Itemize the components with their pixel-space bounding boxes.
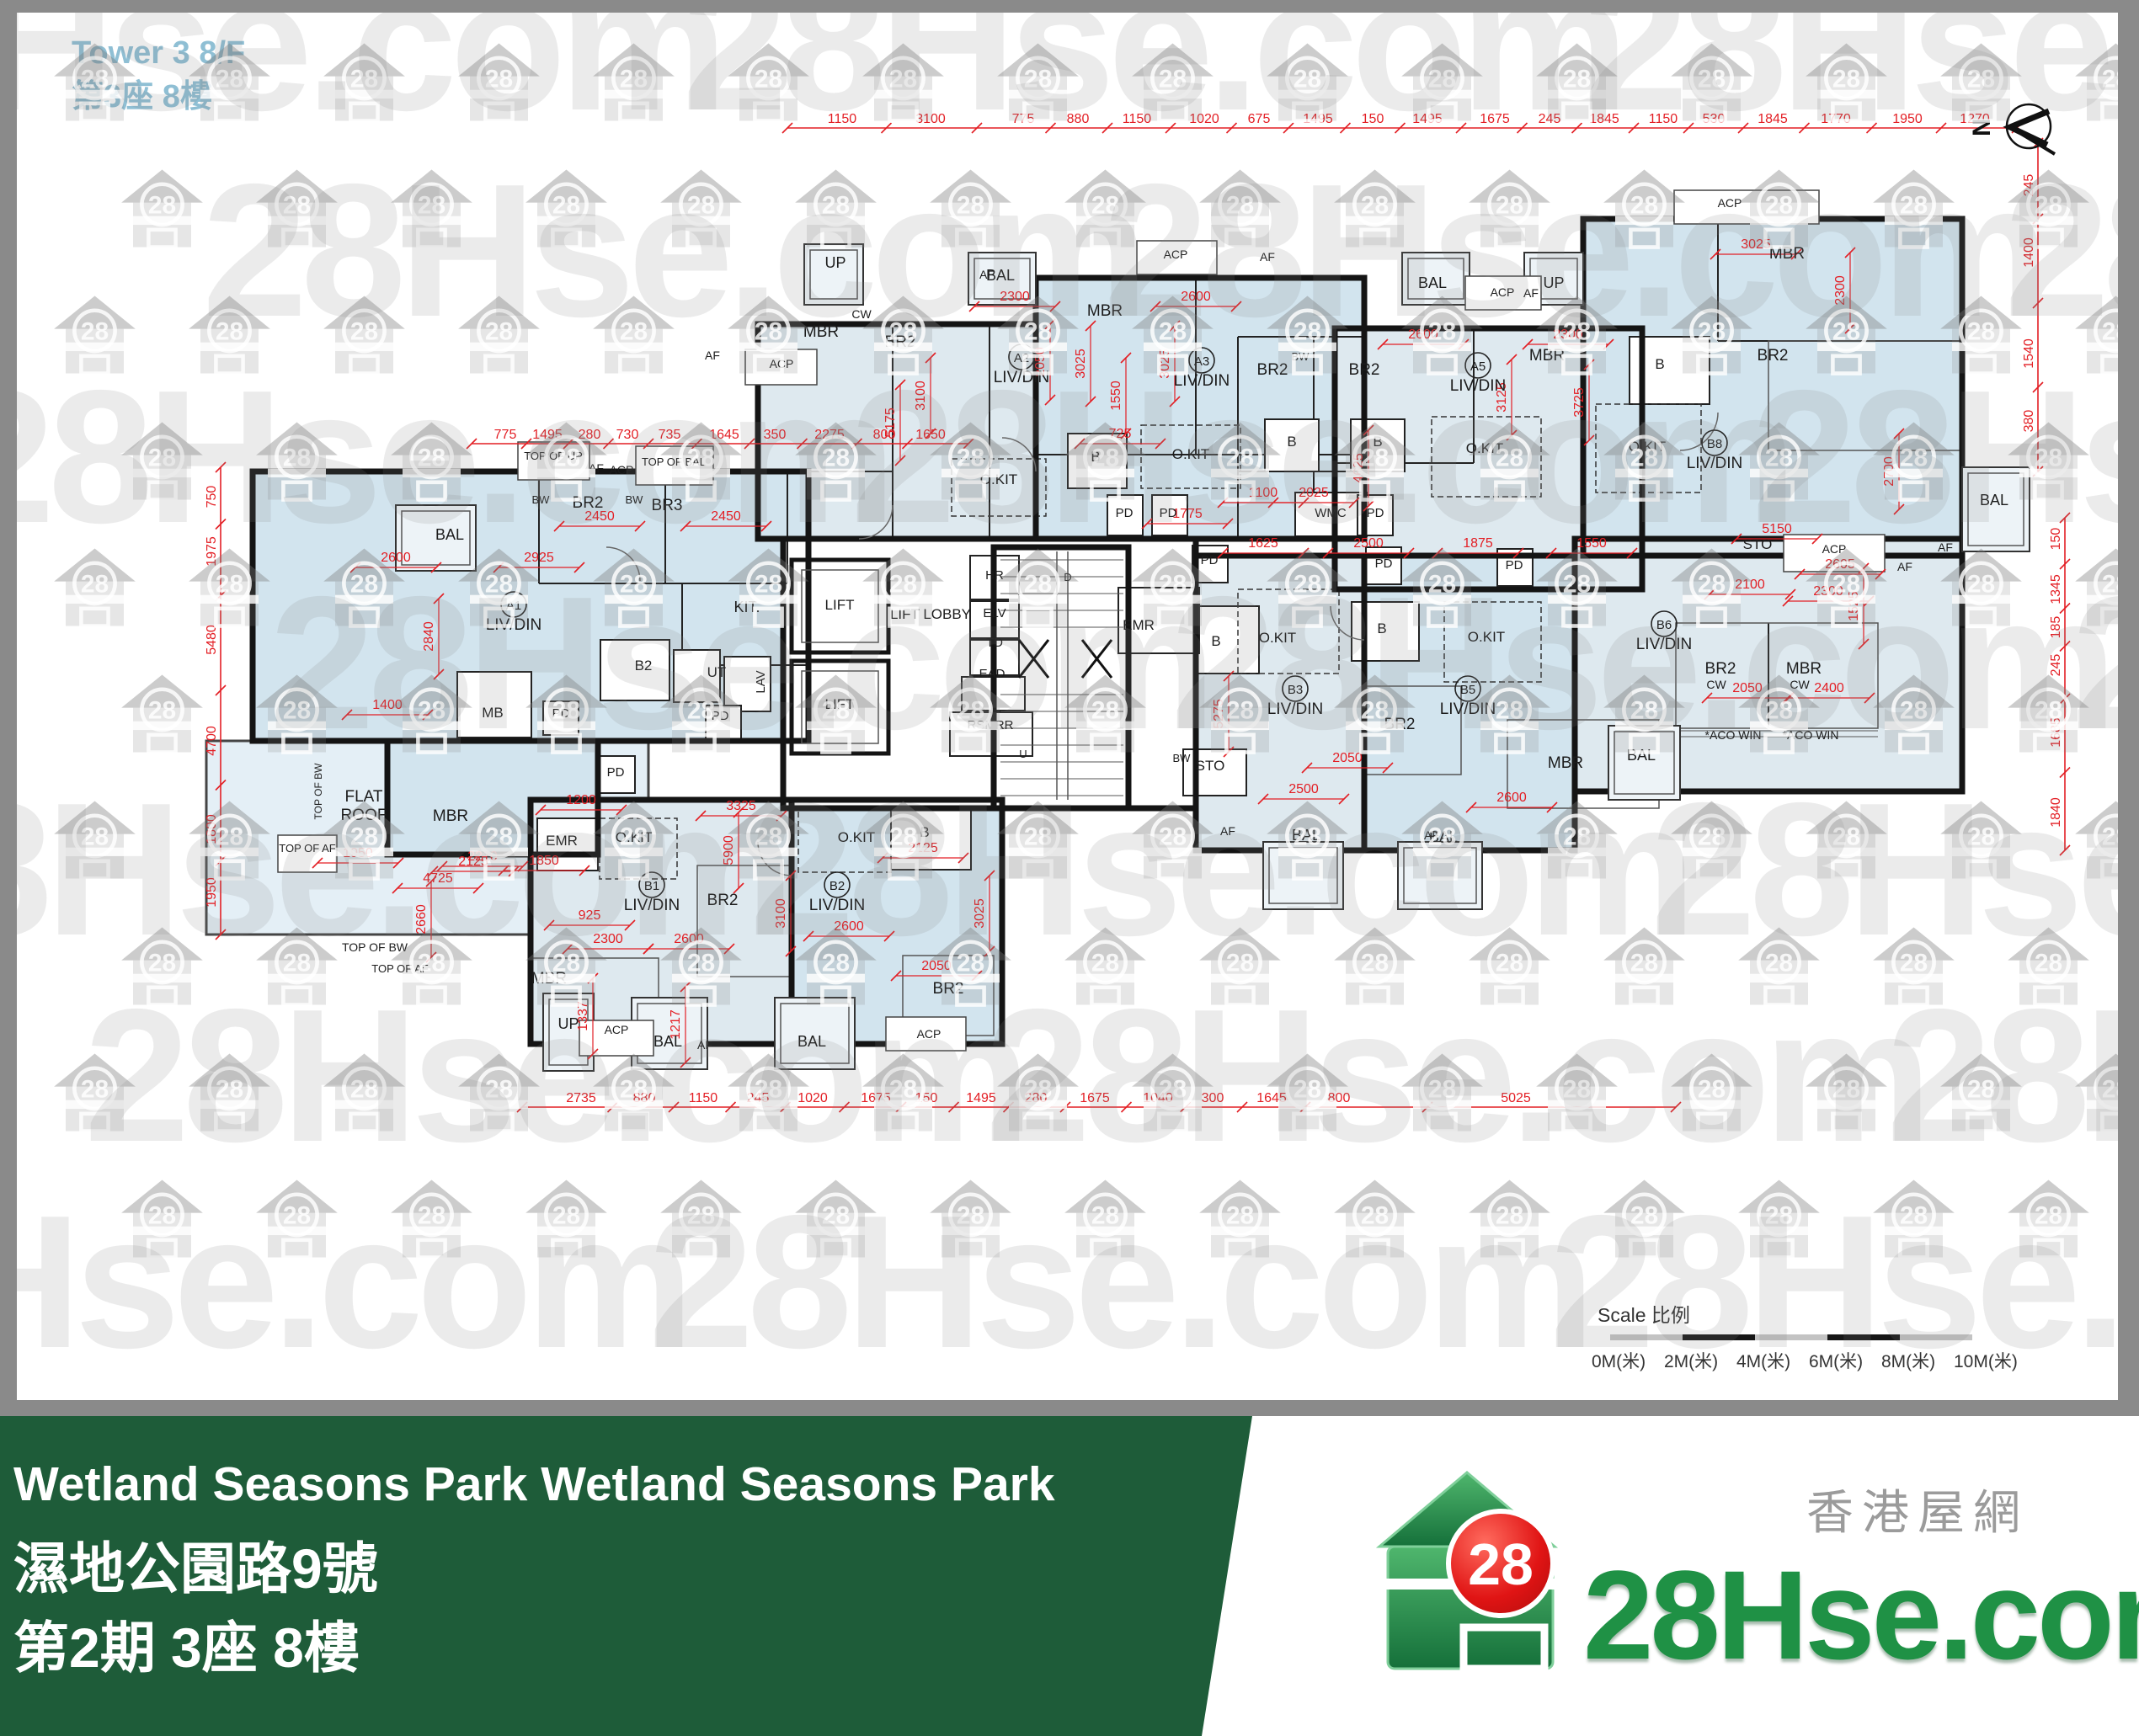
svg-text:UT: UT	[707, 664, 727, 680]
svg-text:B: B	[1211, 633, 1220, 649]
svg-text:3025: 3025	[973, 898, 987, 929]
svg-text:PD: PD	[712, 709, 729, 723]
svg-text:380: 380	[2022, 410, 2036, 433]
svg-text:245: 245	[2022, 174, 2036, 197]
svg-text:STO: STO	[1196, 758, 1225, 774]
svg-text:RSMRR: RSMRR	[968, 718, 1014, 732]
svg-text:2735: 2735	[566, 1091, 596, 1105]
svg-text:1675: 1675	[1480, 112, 1510, 126]
svg-text:BAL: BAL	[1627, 747, 1656, 764]
svg-text:*ACO WIN: *ACO WIN	[1705, 728, 1762, 742]
svg-text:BR2: BR2	[1349, 361, 1380, 379]
estate-name-en: Wetland Seasons Park Wetland Seasons Par…	[13, 1456, 1055, 1512]
svg-text:LAV: LAV	[754, 670, 768, 693]
svg-text:PD: PD	[1160, 506, 1177, 520]
svg-text:245: 245	[1539, 112, 1561, 126]
svg-text:1675: 1675	[1080, 1091, 1110, 1105]
svg-text:925: 925	[579, 908, 601, 923]
svg-text:280: 280	[1025, 1091, 1048, 1105]
svg-text:BAL: BAL	[1980, 492, 2008, 509]
svg-text:ACP: ACP	[1822, 542, 1847, 556]
svg-text:B: B	[1287, 434, 1296, 450]
svg-text:1800: 1800	[205, 814, 219, 844]
svg-text:1020: 1020	[1189, 112, 1219, 126]
svg-text:ACP: ACP	[917, 1027, 941, 1041]
svg-text:MBR: MBR	[1087, 302, 1123, 320]
svg-text:BR2: BR2	[933, 980, 964, 998]
svg-text:B3: B3	[1288, 683, 1303, 697]
svg-text:2600: 2600	[1496, 791, 1527, 805]
svg-text:1550: 1550	[1109, 381, 1123, 411]
svg-text:A1: A1	[506, 599, 521, 613]
svg-text:ACP: ACP	[1718, 196, 1742, 210]
svg-text:1150: 1150	[1123, 112, 1152, 126]
svg-text:PD: PD	[1201, 553, 1219, 567]
svg-text:350: 350	[764, 428, 787, 442]
banner-green-panel: Wetland Seasons Park Wetland Seasons Par…	[0, 1416, 1255, 1736]
svg-text:1400: 1400	[2022, 237, 2036, 268]
svg-text:185: 185	[2049, 616, 2063, 639]
svg-text:4625: 4625	[1352, 453, 1366, 483]
svg-text:5150: 5150	[1762, 522, 1792, 536]
svg-text:3325: 3325	[726, 799, 756, 813]
svg-text:880: 880	[633, 1091, 656, 1105]
svg-text:TOP OF AF: TOP OF AF	[279, 842, 335, 855]
svg-text:4700: 4700	[205, 726, 219, 756]
scale-bar: Scale 比例 0M(米)2M(米)4M(米)6M(米)8M(米)10M(米)	[1592, 1299, 1996, 1392]
svg-text:LIV/DIN: LIV/DIN	[624, 897, 680, 914]
svg-text:1495: 1495	[1412, 112, 1443, 126]
svg-text:PD: PD	[1116, 506, 1134, 520]
svg-text:1950: 1950	[205, 877, 219, 908]
scale-tick-label: 6M(米)	[1809, 1348, 1863, 1373]
svg-text:PD: PD	[607, 765, 625, 780]
plan-title: Tower 3 8/F	[72, 31, 245, 75]
svg-text:BR2: BR2	[1257, 361, 1288, 379]
svg-text:1495: 1495	[1303, 112, 1333, 126]
svg-text:AF: AF	[1220, 824, 1235, 838]
svg-text:CW: CW	[1706, 678, 1726, 691]
svg-text:ACP: ACP	[770, 357, 794, 370]
svg-text:800: 800	[1328, 1091, 1351, 1105]
svg-text:2500: 2500	[1288, 782, 1319, 796]
svg-text:2400: 2400	[1814, 681, 1844, 695]
svg-text:2605: 2605	[1825, 557, 1855, 572]
svg-text:B1: B1	[644, 879, 659, 893]
scale-tick-label: 0M(米)	[1592, 1348, 1646, 1373]
svg-text:3025: 3025	[1158, 349, 1172, 379]
svg-text:U: U	[1019, 748, 1027, 760]
svg-text:2275: 2275	[814, 428, 845, 442]
svg-text:3100: 3100	[915, 112, 946, 126]
scale-title: Scale 比例	[1598, 1299, 1690, 1328]
svg-text:KIT.: KIT.	[733, 599, 760, 615]
svg-text:1345: 1345	[2049, 574, 2063, 604]
svg-text:2050: 2050	[921, 959, 952, 973]
svg-text:ROOF: ROOF	[341, 807, 387, 824]
svg-text:UP: UP	[557, 1015, 579, 1032]
svg-text:MBR: MBR	[433, 807, 468, 825]
svg-text:2050: 2050	[1732, 681, 1763, 695]
svg-text:B: B	[920, 824, 929, 840]
estate-phase-zh: 第2期 3座 8樓	[13, 1603, 360, 1684]
scale-tick-label: 2M(米)	[1664, 1348, 1718, 1373]
svg-text:1400: 1400	[372, 698, 403, 712]
svg-text:AF: AF	[1938, 541, 1953, 554]
svg-text:O.KIT: O.KIT	[838, 829, 875, 845]
svg-text:150: 150	[1362, 112, 1384, 126]
svg-text:ELV: ELV	[983, 606, 1005, 620]
svg-text:LIV/DIN: LIV/DIN	[1174, 372, 1230, 390]
logo-tagline: 香港屋網	[1806, 1475, 2029, 1543]
svg-text:O.KIT: O.KIT	[1466, 440, 1503, 456]
svg-text:245: 245	[2049, 654, 2063, 677]
svg-text:5480: 5480	[205, 625, 219, 655]
svg-text:BR2: BR2	[1705, 660, 1736, 678]
logo-house-icon: 28	[1373, 1462, 1575, 1681]
svg-text:2300: 2300	[1553, 327, 1583, 342]
svg-text:TD: TD	[986, 636, 1003, 650]
svg-text:ACP: ACP	[1491, 285, 1515, 299]
svg-text:2300: 2300	[1813, 584, 1843, 599]
svg-text:530: 530	[1703, 112, 1726, 126]
svg-text:2600: 2600	[834, 919, 864, 934]
svg-text:O.KIT: O.KIT	[1468, 629, 1505, 645]
svg-text:1770: 1770	[1821, 112, 1851, 126]
svg-text:MBR: MBR	[1769, 245, 1805, 263]
svg-text:*ACO WIN: *ACO WIN	[1783, 728, 1839, 742]
svg-text:150: 150	[2049, 528, 2063, 551]
compass-n-label: N	[1968, 118, 1996, 136]
svg-text:O.KIT: O.KIT	[616, 829, 653, 845]
svg-text:AF: AF	[1260, 250, 1275, 264]
svg-text:800: 800	[873, 428, 896, 442]
svg-text:LIFT: LIFT	[825, 696, 855, 712]
svg-text:BAL: BAL	[1418, 274, 1447, 291]
svg-text:MB: MB	[482, 705, 504, 721]
svg-text:1540: 1540	[2022, 338, 2036, 369]
svg-text:AF: AF	[589, 461, 604, 475]
svg-text:1950: 1950	[343, 846, 373, 860]
svg-text:1850: 1850	[529, 854, 559, 868]
svg-text:1950: 1950	[1892, 112, 1923, 126]
svg-text:BR3: BR3	[652, 497, 683, 514]
svg-text:2300: 2300	[1000, 290, 1030, 304]
svg-text:PD: PD	[552, 706, 570, 721]
svg-text:2210: 2210	[467, 849, 498, 864]
svg-text:2600: 2600	[381, 551, 411, 565]
svg-text:AF: AF	[705, 349, 720, 362]
svg-text:675: 675	[1248, 112, 1271, 126]
svg-text:1100: 1100	[1249, 486, 1278, 500]
svg-text:1975: 1975	[205, 536, 219, 567]
svg-text:B2: B2	[635, 658, 653, 674]
svg-text:1685: 1685	[2049, 717, 2063, 748]
svg-text:1495: 1495	[532, 428, 563, 442]
svg-text:BW: BW	[1292, 350, 1310, 363]
bottom-banner: Wetland Seasons Park Wetland Seasons Par…	[0, 1416, 2139, 1736]
svg-text:1495: 1495	[966, 1091, 996, 1105]
svg-text:LIV/DIN: LIV/DIN	[1450, 377, 1507, 395]
svg-text:AF: AF	[1897, 560, 1912, 573]
svg-text:1650: 1650	[915, 428, 946, 442]
scale-segment	[1900, 1334, 1972, 1340]
svg-text:B5: B5	[1460, 683, 1475, 697]
svg-text:EAD: EAD	[979, 667, 1005, 681]
svg-text:HR: HR	[985, 568, 1004, 583]
svg-text:TOP OF BW: TOP OF BW	[312, 763, 324, 820]
svg-text:730: 730	[616, 428, 639, 442]
svg-text:300: 300	[1202, 1091, 1224, 1105]
svg-text:MBR: MBR	[1548, 754, 1583, 772]
svg-text:D: D	[1064, 571, 1071, 583]
svg-text:B: B	[1091, 449, 1100, 465]
svg-text:AF: AF	[1424, 828, 1439, 842]
svg-text:2025: 2025	[1299, 486, 1329, 500]
svg-text:O.KIT: O.KIT	[1629, 439, 1666, 455]
svg-text:UP: UP	[824, 254, 845, 271]
svg-text:2600: 2600	[1408, 327, 1438, 342]
svg-text:3725: 3725	[1572, 387, 1587, 418]
svg-text:O.KIT: O.KIT	[1172, 446, 1209, 462]
svg-text:2100: 2100	[1735, 578, 1765, 592]
svg-text:280: 280	[579, 428, 601, 442]
svg-text:BAL: BAL	[797, 1033, 826, 1050]
svg-text:TOP OF UP: TOP OF UP	[524, 450, 583, 462]
svg-text:2660: 2660	[414, 904, 429, 935]
svg-text:BR2: BR2	[573, 494, 604, 512]
svg-text:150: 150	[915, 1091, 938, 1105]
svg-text:ACP: ACP	[610, 463, 634, 477]
svg-text:880: 880	[1067, 112, 1090, 126]
svg-text:2840: 2840	[422, 621, 436, 652]
svg-text:PD: PD	[1506, 558, 1523, 572]
svg-text:1020: 1020	[797, 1091, 828, 1105]
scale-segment	[1755, 1334, 1827, 1340]
svg-text:1150: 1150	[1649, 112, 1678, 126]
scale-segment	[1683, 1334, 1755, 1340]
svg-text:PD: PD	[1375, 556, 1393, 571]
svg-text:735: 735	[659, 428, 681, 442]
svg-text:2125: 2125	[908, 841, 938, 855]
svg-text:1525: 1525	[1847, 591, 1861, 621]
svg-text:O.KIT: O.KIT	[1259, 630, 1296, 646]
svg-text:B: B	[1655, 356, 1664, 372]
svg-text:245: 245	[747, 1091, 770, 1105]
svg-text:750: 750	[205, 486, 219, 509]
svg-text:BW: BW	[1173, 752, 1192, 764]
svg-text:MBR: MBR	[803, 323, 839, 341]
svg-text:3025: 3025	[1741, 237, 1771, 252]
site-logo: 28 28Hse.com 香港屋網	[1373, 1462, 2131, 1732]
svg-text:2300: 2300	[1833, 275, 1848, 306]
svg-text:LIV/DIN: LIV/DIN	[486, 616, 542, 634]
svg-text:TOP OF BAL: TOP OF BAL	[642, 455, 706, 468]
svg-text:B: B	[1377, 620, 1386, 636]
plan-header: Tower 3 8/F 第3座 8樓	[72, 31, 245, 119]
svg-text:STO: STO	[1743, 536, 1773, 552]
svg-text:1645: 1645	[709, 428, 739, 442]
svg-text:AF: AF	[697, 1038, 712, 1052]
svg-text:1040: 1040	[1143, 1091, 1173, 1105]
svg-text:1675: 1675	[861, 1091, 891, 1105]
svg-text:BAL: BAL	[1292, 827, 1320, 844]
svg-text:1645: 1645	[1256, 1091, 1287, 1105]
svg-text:LIV/DIN: LIV/DIN	[809, 897, 866, 914]
svg-text:2500: 2500	[1353, 536, 1384, 551]
svg-text:O.KIT: O.KIT	[980, 471, 1017, 487]
svg-text:1150: 1150	[828, 112, 857, 126]
svg-text:B: B	[1373, 434, 1382, 450]
plan-subtitle: 第3座 8樓	[72, 75, 245, 119]
svg-text:ACP: ACP	[1164, 248, 1188, 261]
scale-segment	[1610, 1334, 1683, 1340]
logo-site-name: 28Hse.com	[1583, 1542, 2139, 1688]
svg-text:FLAT: FLAT	[344, 788, 382, 806]
floorplan-svg: 2300260030253025517531002450245026002925…	[17, 13, 2118, 1400]
svg-text:BR2: BR2	[885, 333, 916, 351]
svg-text:3100: 3100	[774, 898, 788, 929]
svg-text:LIV/DIN: LIV/DIN	[1687, 455, 1743, 472]
svg-text:WMC: WMC	[1315, 506, 1347, 520]
svg-text:LIFT: LIFT	[825, 597, 855, 613]
svg-text:775: 775	[494, 428, 517, 442]
svg-text:BAL: BAL	[435, 526, 464, 543]
svg-text:1150: 1150	[689, 1091, 718, 1105]
scale-tick-label: 10M(米)	[1954, 1348, 2018, 1373]
svg-text:CW: CW	[851, 307, 872, 321]
svg-text:725: 725	[1109, 427, 1132, 441]
svg-text:MBR: MBR	[1529, 347, 1565, 365]
svg-text:1200: 1200	[566, 793, 596, 807]
svg-text:TOP OF BW: TOP OF BW	[342, 940, 408, 954]
svg-text:1625: 1625	[1248, 536, 1278, 551]
svg-text:BW: BW	[532, 493, 551, 506]
svg-text:2450: 2450	[711, 509, 741, 524]
svg-text:MBR: MBR	[1786, 660, 1822, 678]
plan-canvas: 2300260030253025517531002450245026002925…	[17, 13, 2118, 1400]
svg-text:LIFT LOBBY: LIFT LOBBY	[890, 606, 971, 622]
svg-text:B8: B8	[1707, 437, 1722, 451]
svg-text:BR2: BR2	[1384, 716, 1416, 733]
page: { "header": {"line1": "Tower 3 8/F", "li…	[0, 0, 2139, 1736]
svg-text:ACP: ACP	[605, 1023, 629, 1036]
svg-text:A5: A5	[1470, 359, 1486, 374]
svg-text:2700: 2700	[1882, 456, 1896, 487]
svg-text:2600: 2600	[1181, 290, 1211, 304]
svg-text:LIV/DIN: LIV/DIN	[1440, 700, 1496, 718]
svg-text:MBR: MBR	[531, 970, 567, 988]
scale-tick-label: 4M(米)	[1736, 1348, 1790, 1373]
svg-text:1775: 1775	[1172, 507, 1203, 521]
logo-28-text: 28	[1468, 1531, 1534, 1597]
svg-text:B2: B2	[829, 879, 845, 893]
svg-text:1875: 1875	[1463, 536, 1493, 551]
scale-tick-label: 8M(米)	[1881, 1348, 1935, 1373]
svg-text:BAL: BAL	[653, 1033, 682, 1050]
svg-text:BW: BW	[626, 493, 644, 506]
svg-text:3100: 3100	[914, 381, 928, 411]
svg-text:3025: 3025	[1074, 349, 1088, 379]
svg-text:A2: A2	[1014, 351, 1029, 365]
svg-text:AF: AF	[979, 268, 995, 281]
svg-text:EMR: EMR	[546, 833, 578, 849]
svg-text:BR2: BR2	[1758, 347, 1789, 365]
scale-segment	[1827, 1334, 1900, 1340]
svg-text:2050: 2050	[1332, 751, 1363, 765]
svg-text:B6: B6	[1656, 618, 1672, 632]
svg-text:LIV/DIN: LIV/DIN	[994, 369, 1050, 386]
svg-text:LIV/DIN: LIV/DIN	[1636, 636, 1693, 653]
svg-text:LIV/DIN: LIV/DIN	[1267, 700, 1324, 718]
svg-text:1845: 1845	[1758, 112, 1788, 126]
estate-address-zh: 濕地公園路9號	[13, 1524, 378, 1605]
svg-text:775: 775	[1012, 112, 1035, 126]
svg-text:CW: CW	[1790, 678, 1810, 691]
svg-text:1550: 1550	[1576, 536, 1607, 551]
svg-text:BR2: BR2	[707, 892, 739, 909]
svg-text:1840: 1840	[2049, 797, 2063, 828]
svg-text:PD: PD	[1367, 506, 1384, 520]
svg-text:5275: 5275	[1212, 699, 1226, 729]
svg-text:1845: 1845	[1589, 112, 1619, 126]
svg-text:5025: 5025	[1501, 1091, 1531, 1105]
svg-text:2600: 2600	[674, 932, 704, 946]
svg-text:4725: 4725	[423, 871, 453, 886]
svg-text:AF: AF	[1523, 286, 1539, 300]
svg-text:5900: 5900	[722, 835, 736, 865]
svg-text:2300: 2300	[593, 932, 623, 946]
svg-text:A3: A3	[1194, 354, 1209, 369]
svg-text:TOP OF AF: TOP OF AF	[371, 962, 428, 975]
svg-text:2925: 2925	[524, 551, 554, 565]
svg-text:UP: UP	[1543, 274, 1564, 291]
svg-text:EMR: EMR	[1123, 617, 1155, 633]
